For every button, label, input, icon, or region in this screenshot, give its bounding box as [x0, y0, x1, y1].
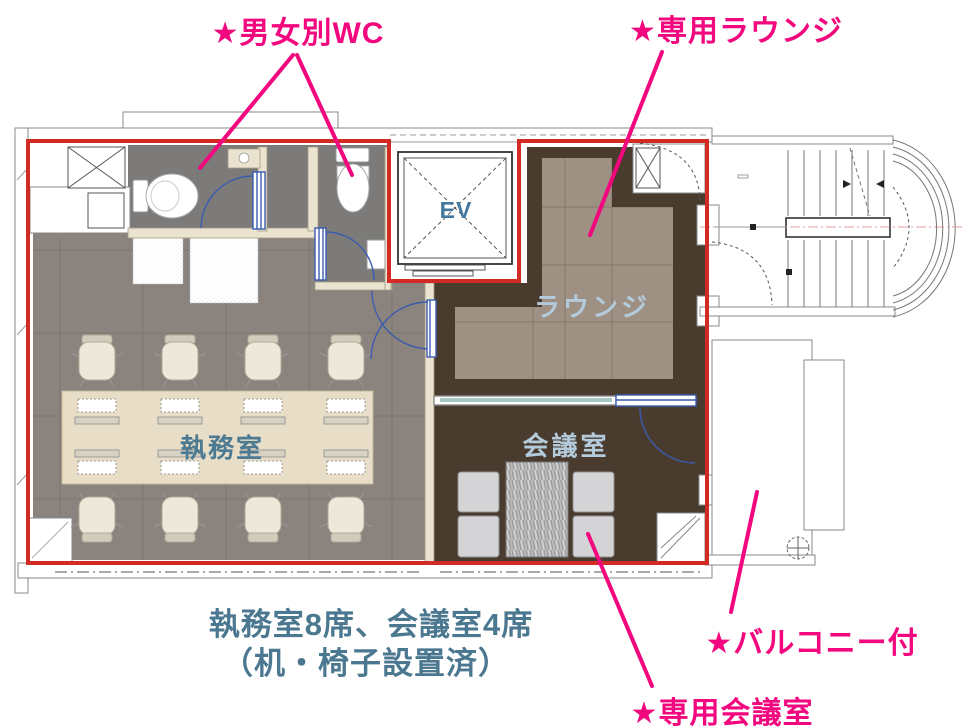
room-label-office: 執務室: [180, 428, 264, 465]
annotation-balcony-label: ★バルコニー付: [705, 618, 918, 662]
annotation-meeting-label: ★専用会議室: [631, 688, 814, 728]
floorplan-canvas: ★男女別WC ★専用ラウンジ ★バルコニー付 ★専用会議室 執務室 会議室 ラウ…: [0, 0, 971, 728]
room-label-elevator: EV: [440, 197, 473, 224]
room-label-lounge: ラウンジ: [534, 287, 650, 324]
room-label-meeting: 会議室: [522, 426, 609, 463]
floors: [28, 144, 719, 563]
annotation-lounge-label: ★専用ラウンジ: [629, 6, 843, 50]
balcony: [705, 340, 844, 565]
annotation-wc-label: ★男女別WC: [212, 8, 385, 52]
caption-line2: （机・椅子設置済）: [222, 638, 510, 683]
